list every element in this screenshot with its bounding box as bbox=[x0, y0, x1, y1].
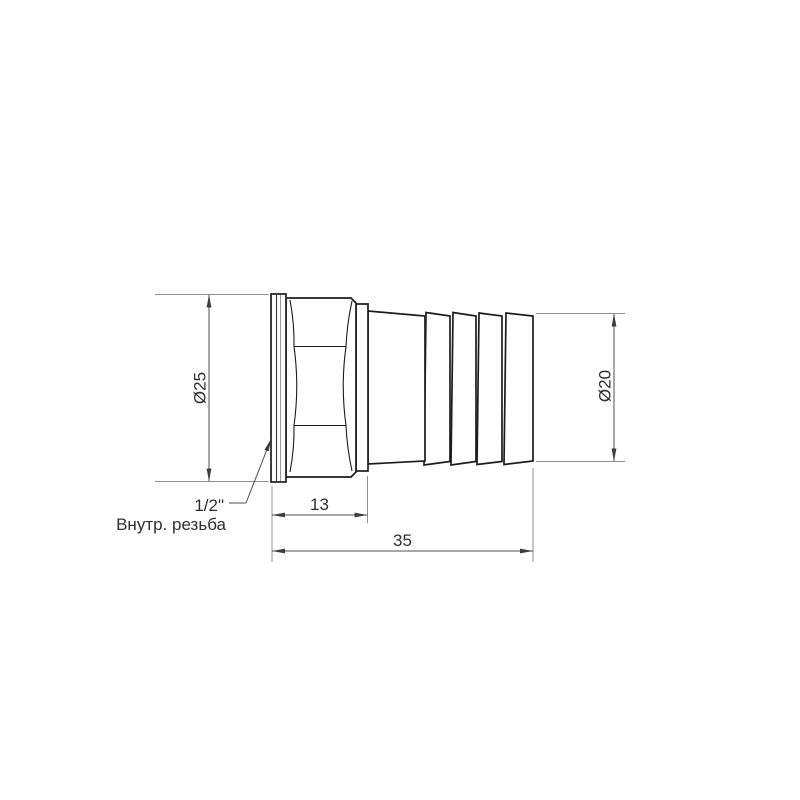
hose-barb-section bbox=[368, 311, 533, 465]
dim-outer-diameter: Ø25 bbox=[155, 295, 269, 482]
dim-barb-diameter: Ø20 bbox=[536, 314, 625, 462]
thread-note-label: Внутр. резьба bbox=[116, 515, 226, 534]
arrowhead-up bbox=[207, 295, 212, 308]
arrowhead-down bbox=[207, 469, 212, 482]
thread-flange bbox=[271, 294, 286, 482]
arrowhead-right bbox=[520, 549, 533, 554]
arrowhead-right bbox=[355, 513, 368, 518]
shank-taper bbox=[368, 311, 425, 464]
flange-outline bbox=[271, 294, 286, 482]
barb-ridge-2 bbox=[451, 313, 476, 466]
dim-label-outer-diameter: Ø25 bbox=[191, 372, 210, 404]
hex-body bbox=[286, 298, 356, 477]
thread-callout: 1/2" Внутр. резьба bbox=[116, 438, 271, 534]
thread-size-label: 1/2" bbox=[194, 496, 224, 515]
dim-label-body-length: 13 bbox=[310, 495, 329, 514]
step-ring bbox=[356, 304, 368, 471]
dim-body-length: 13 bbox=[272, 476, 368, 562]
fitting-technical-drawing: Ø25 Ø20 13 35 1/2" Внутр. резьба bbox=[0, 0, 800, 800]
part-outline bbox=[271, 294, 533, 482]
arrowhead-down bbox=[612, 449, 617, 462]
barb-ridge-4 bbox=[504, 313, 533, 465]
arrowhead-left bbox=[272, 549, 285, 554]
barb-ridge-3 bbox=[477, 313, 502, 465]
arrowhead-up bbox=[612, 314, 617, 327]
barb-ridge-1 bbox=[424, 313, 450, 466]
dim-label-barb-diameter: Ø20 bbox=[596, 370, 615, 402]
arrowhead-left bbox=[272, 513, 285, 518]
dim-label-total-length: 35 bbox=[393, 531, 412, 550]
